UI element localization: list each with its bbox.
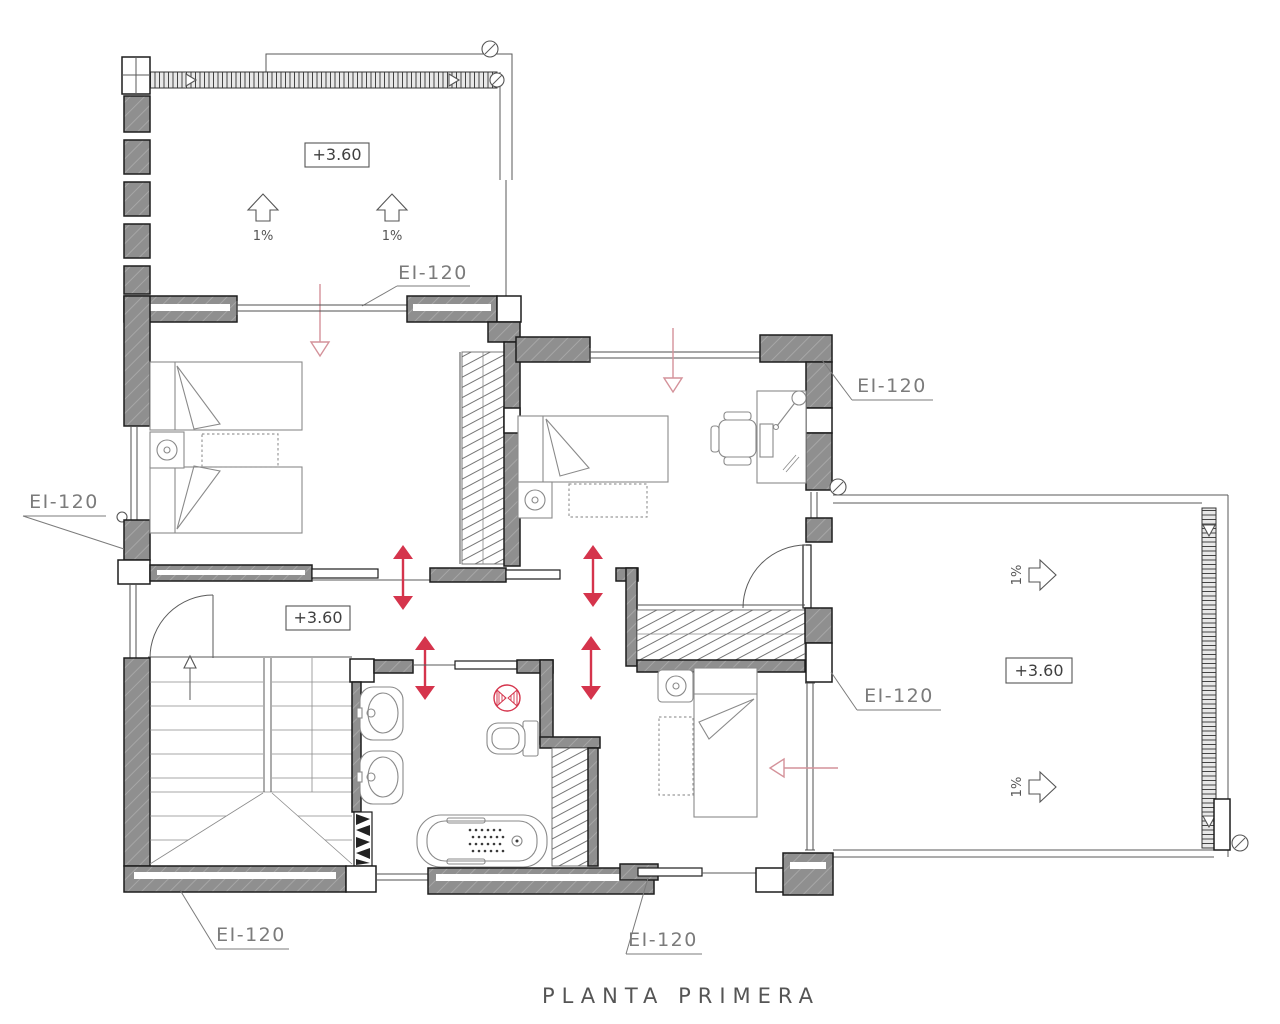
wardrobe	[460, 352, 504, 564]
bedroom-1: EI-120	[23, 296, 560, 658]
fire-rating-annotation: EI-120	[831, 672, 941, 710]
office-chair	[711, 412, 756, 465]
terrace-right: +3.60 1% 1% EI-120	[830, 479, 1248, 857]
fire-rating-annotation: EI-120	[822, 360, 933, 400]
ventilation-arrow-icon	[583, 545, 603, 607]
airflow-arrow-left-icon	[770, 759, 838, 777]
drain-symbol-icon	[482, 41, 498, 57]
door	[743, 545, 811, 608]
fire-rating-annotation: EI-120	[180, 890, 289, 949]
stair-direction-arrow-icon	[184, 656, 196, 700]
drain-symbol-icon	[830, 479, 846, 495]
shower-closet	[552, 748, 588, 866]
terrace-railing	[1202, 508, 1216, 848]
slope-label: 1%	[382, 229, 403, 244]
bed	[518, 416, 668, 482]
sliding-door	[312, 569, 378, 578]
airflow-arrow-down-icon	[311, 284, 329, 356]
sink	[357, 751, 403, 804]
fire-rating-label: EI-120	[628, 929, 698, 951]
bedroom-3	[637, 605, 838, 850]
bed	[150, 362, 302, 430]
staircase	[124, 656, 352, 866]
floor-plan-drawing: +3.60 1% 1% EI-120	[0, 0, 1280, 1024]
rug	[569, 484, 647, 517]
keyboard	[760, 424, 773, 457]
airflow-arrow-down-icon	[664, 328, 682, 392]
fire-rating-label: EI-120	[216, 924, 286, 946]
nightstand	[658, 670, 693, 702]
slope-label: 1%	[253, 229, 274, 244]
sliding-window	[638, 868, 702, 876]
fire-rating-label: EI-120	[864, 685, 934, 707]
nightstand	[518, 482, 552, 518]
drain-symbol-icon	[490, 73, 504, 87]
drain-symbol-icon	[1232, 835, 1248, 851]
desk	[757, 391, 806, 483]
fire-rating-label: EI-120	[398, 262, 468, 284]
toilet	[487, 721, 538, 756]
slope-label: 1%	[1010, 565, 1025, 586]
extractor-fan-icon	[494, 685, 520, 711]
fire-rating-annotation: EI-120	[23, 491, 124, 549]
door	[150, 595, 213, 658]
terrace-railing	[148, 72, 497, 88]
bed	[694, 668, 757, 817]
fire-rating-label: EI-120	[857, 375, 927, 397]
slope-arrow-up-icon: 1%	[248, 194, 278, 244]
duct-shaft	[354, 812, 372, 866]
plan-title: PLANTA PRIMERA	[542, 984, 820, 1008]
level-label: +3.60	[312, 145, 361, 164]
sink	[357, 687, 403, 740]
rug	[202, 434, 278, 467]
slope-arrow-right-icon: 1%	[1010, 560, 1056, 590]
ventilation-arrow-icon	[415, 636, 435, 700]
bedroom-2: EI-120	[516, 328, 933, 608]
wardrobe	[637, 610, 805, 660]
slope-arrow-up-icon: 1%	[377, 194, 407, 244]
fire-rating-label: EI-120	[29, 491, 99, 513]
ventilation-arrow-icon	[581, 636, 601, 700]
bottom-annotations: EI-120 EI-120 PLANTA PRIMERA	[180, 878, 820, 1008]
level-label: +3.60	[293, 608, 342, 627]
nightstand	[150, 432, 184, 468]
sliding-door	[455, 661, 517, 669]
bathroom	[350, 659, 600, 867]
rug	[659, 717, 693, 795]
ventilation-arrow-icon	[393, 545, 413, 610]
bathtub	[417, 815, 547, 867]
floor-plan-sheet: +3.60 1% 1% EI-120	[0, 0, 1280, 1024]
slope-arrow-right-icon: 1%	[1010, 772, 1056, 802]
stair-treads	[150, 658, 352, 840]
bed	[150, 466, 302, 533]
level-label: +3.60	[1014, 661, 1063, 680]
terrace-upper: +3.60 1% 1% EI-120	[122, 41, 521, 356]
slope-label: 1%	[1010, 777, 1025, 798]
louver-wall	[122, 57, 150, 294]
sliding-door	[506, 570, 560, 579]
